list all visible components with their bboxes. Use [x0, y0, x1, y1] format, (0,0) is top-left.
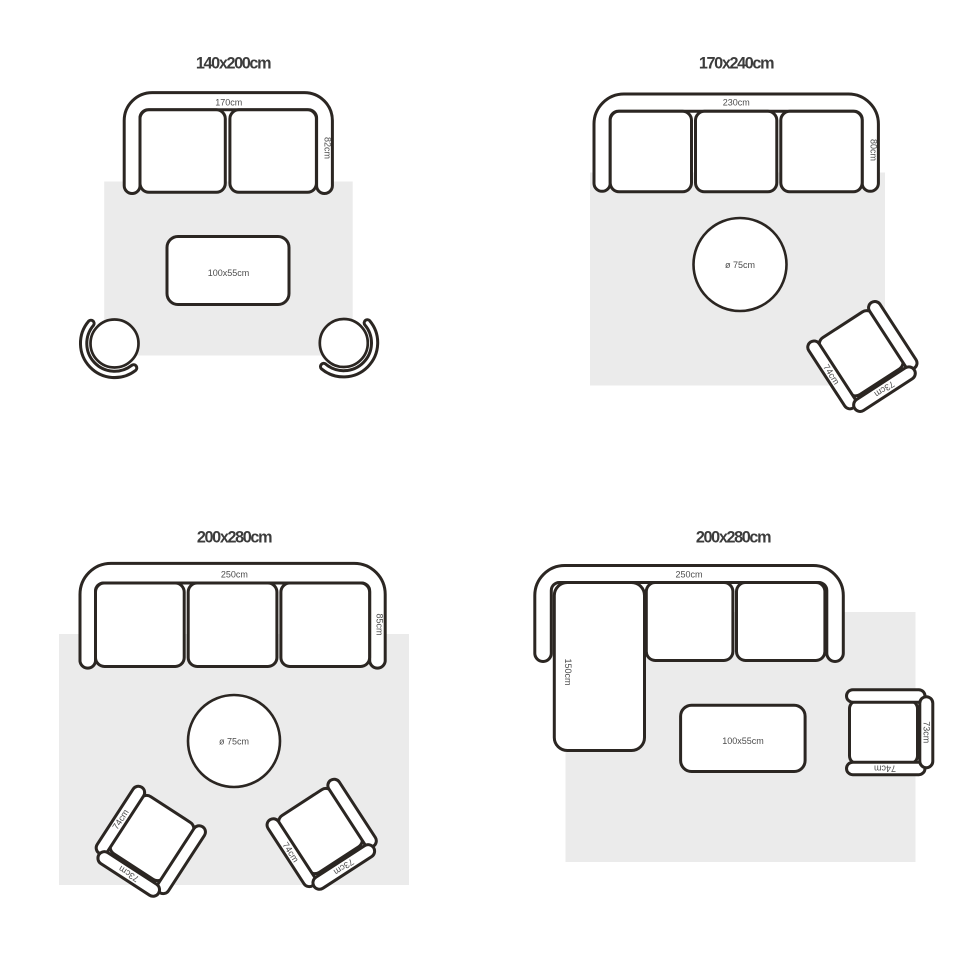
svg-text:140x200cm: 140x200cm: [196, 55, 271, 73]
svg-text:100x55cm: 100x55cm: [208, 268, 250, 278]
svg-text:ø 75cm: ø 75cm: [725, 260, 755, 270]
svg-text:250cm: 250cm: [221, 570, 248, 580]
svg-text:80cm: 80cm: [868, 139, 878, 161]
svg-text:100x55cm: 100x55cm: [722, 736, 764, 746]
svg-text:74cm: 74cm: [874, 764, 896, 774]
svg-text:200x280cm: 200x280cm: [197, 529, 272, 547]
svg-text:73cm: 73cm: [921, 721, 931, 743]
svg-text:200x280cm: 200x280cm: [696, 529, 771, 547]
svg-text:170x240cm: 170x240cm: [699, 55, 774, 73]
svg-text:82cm: 82cm: [323, 137, 333, 159]
svg-text:85cm: 85cm: [375, 613, 385, 635]
svg-text:ø 75cm: ø 75cm: [219, 737, 249, 747]
svg-text:250cm: 250cm: [675, 569, 702, 579]
svg-text:150cm: 150cm: [563, 658, 573, 685]
svg-text:170cm: 170cm: [215, 97, 242, 107]
svg-text:230cm: 230cm: [723, 97, 750, 107]
